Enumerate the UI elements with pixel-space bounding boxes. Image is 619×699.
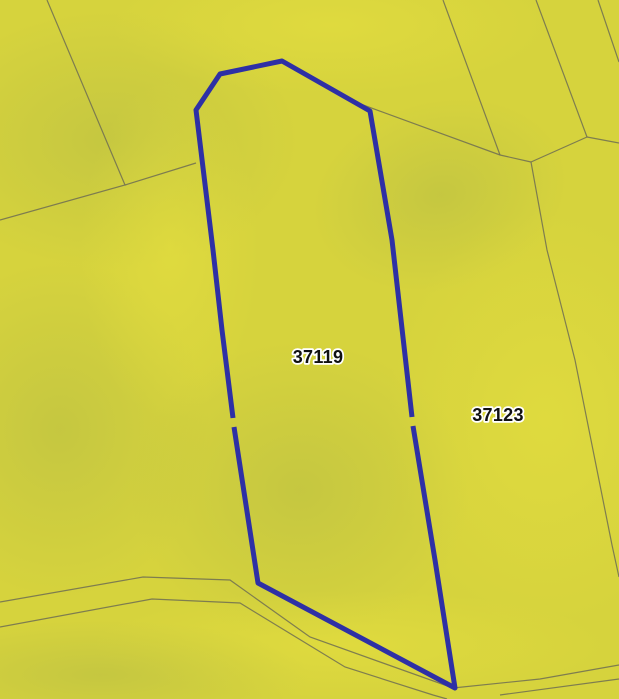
map-viewport[interactable]: 37119 37123 [0,0,619,699]
parcel-label-adjacent: 37123 [472,405,524,425]
parcel-label-highlighted: 37119 [293,347,344,367]
parcel-map-canvas[interactable]: 37119 37123 [0,0,619,699]
